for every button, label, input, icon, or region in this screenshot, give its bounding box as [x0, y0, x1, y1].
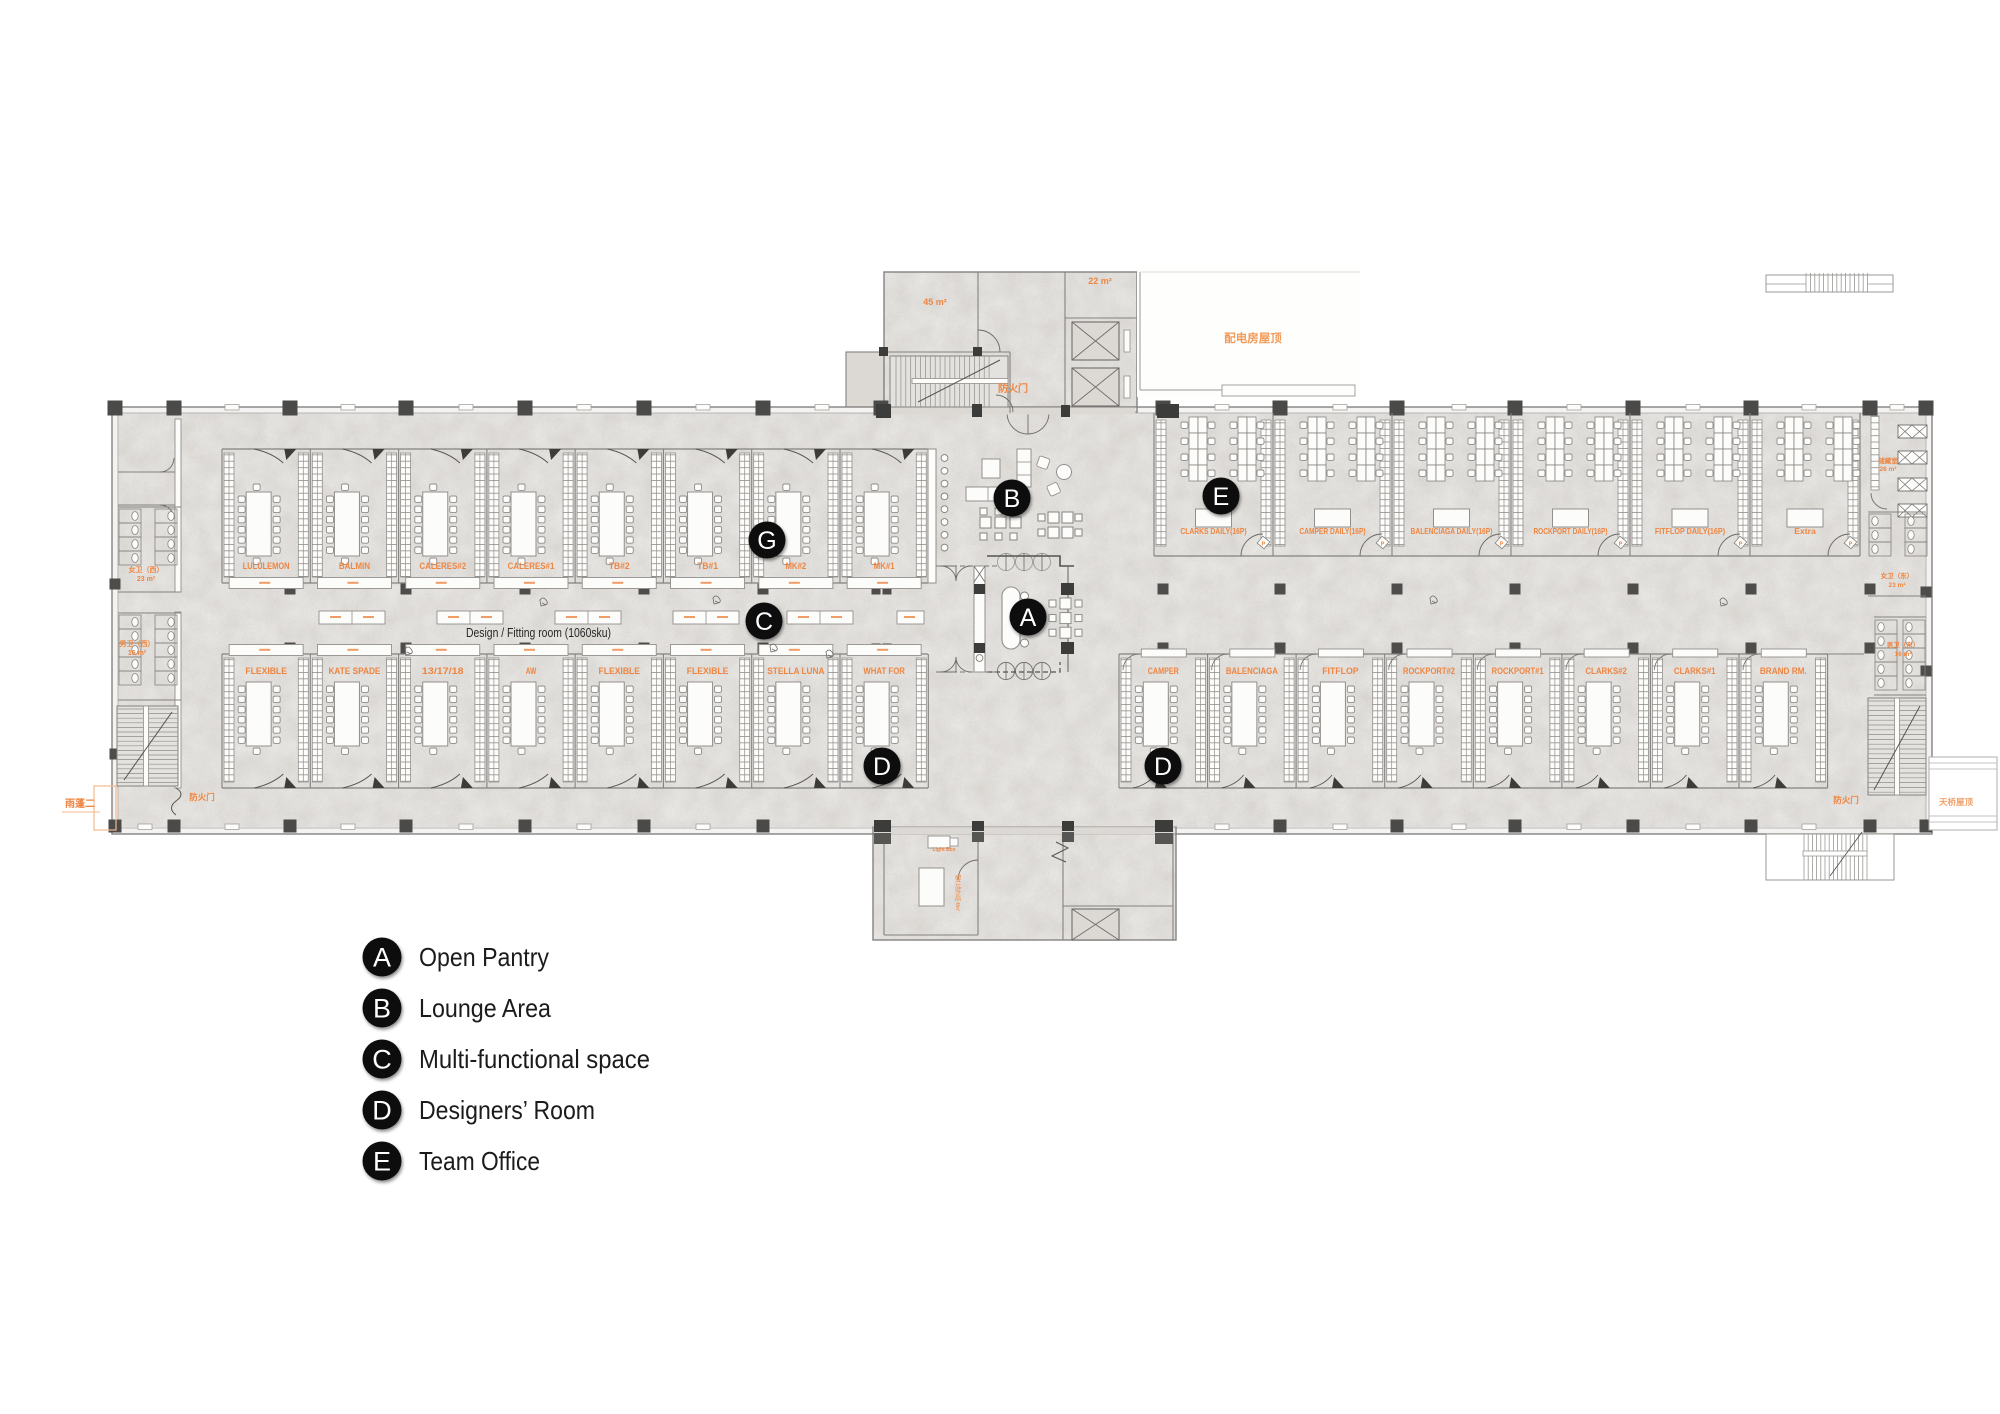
svg-text:G: G: [757, 527, 776, 555]
svg-text:储藏室: 储藏室: [1877, 456, 1898, 465]
svg-text:CLARKS DAILY(16P): CLARKS DAILY(16P): [1180, 526, 1246, 536]
svg-text:女卫（东）: 女卫（东）: [1881, 571, 1914, 580]
svg-text:KATE SPADE: KATE SPADE: [328, 666, 380, 676]
svg-text:MK#2: MK#2: [785, 561, 806, 571]
svg-text:TB#1: TB#1: [697, 561, 718, 571]
svg-text:P: P: [1849, 542, 1853, 548]
svg-text:C: C: [755, 608, 773, 636]
svg-text:Lounge Area: Lounge Area: [419, 993, 551, 1023]
svg-text:CALERES#1: CALERES#1: [508, 561, 555, 571]
svg-text:Open Pantry: Open Pantry: [419, 942, 549, 972]
svg-text:B: B: [1004, 485, 1021, 513]
svg-text:B: B: [373, 994, 391, 1024]
svg-text:Light Box: Light Box: [932, 847, 955, 853]
svg-text:P: P: [1381, 542, 1385, 548]
svg-text:22 m²: 22 m²: [1088, 276, 1112, 286]
svg-text:D: D: [1154, 753, 1172, 781]
svg-text:雨蓬二: 雨蓬二: [65, 797, 95, 810]
svg-text:E: E: [1213, 483, 1230, 511]
svg-text:CLARKS#2: CLARKS#2: [1585, 666, 1627, 676]
svg-text:Designers’ Room: Designers’ Room: [419, 1095, 595, 1125]
svg-text:FITFLOP: FITFLOP: [1322, 666, 1358, 676]
svg-text:TB#2: TB#2: [609, 561, 630, 571]
svg-text:BALENCIAGA DAILY(16P): BALENCIAGA DAILY(16P): [1411, 526, 1493, 536]
svg-text:防火门: 防火门: [189, 792, 215, 802]
svg-text:男卫（西）: 男卫（西）: [120, 640, 155, 648]
svg-text:防火门: 防火门: [1833, 795, 1859, 805]
svg-text:CALERES#2: CALERES#2: [419, 561, 466, 571]
svg-text:男卫（东）: 男卫（东）: [1886, 640, 1920, 649]
svg-text:STELLA LUNA: STELLA LUNA: [767, 666, 825, 676]
svg-text:E: E: [373, 1147, 391, 1177]
svg-text:ROCKPORT DAILY(16P): ROCKPORT DAILY(16P): [1533, 526, 1607, 536]
svg-text:D: D: [372, 1096, 392, 1126]
svg-text:CAMPER DAILY(16P): CAMPER DAILY(16P): [1299, 526, 1365, 536]
svg-text:FLEXIBLE: FLEXIBLE: [598, 666, 640, 676]
svg-text:Extra: Extra: [1794, 526, 1816, 536]
svg-text:A: A: [1020, 604, 1037, 632]
svg-text:MK#1: MK#1: [874, 561, 895, 571]
svg-text:23 m²: 23 m²: [1889, 582, 1907, 589]
svg-text:Design / Fitting room (1060sku: Design / Fitting room (1060sku): [466, 625, 611, 640]
svg-text:16 m²: 16 m²: [128, 650, 147, 657]
svg-text:Team Office: Team Office: [419, 1146, 540, 1176]
svg-text:BALMIN: BALMIN: [339, 561, 370, 571]
svg-text:配电房屋顶: 配电房屋顶: [1224, 331, 1282, 345]
svg-text:13/17/18: 13/17/18: [422, 666, 464, 676]
svg-text:P: P: [1262, 542, 1266, 548]
svg-text:23 m²: 23 m²: [137, 576, 156, 583]
svg-text:16 m²: 16 m²: [1895, 651, 1913, 658]
svg-text:天桥屋顶: 天桥屋顶: [1939, 797, 1974, 807]
svg-text:WHAT FOR: WHAT FOR: [863, 666, 905, 676]
svg-text:P: P: [1500, 542, 1504, 548]
svg-text:BALENCIAGA: BALENCIAGA: [1226, 666, 1278, 676]
svg-text:A: A: [373, 943, 391, 973]
svg-text:P: P: [1619, 542, 1623, 548]
svg-text:FLEXIBLE: FLEXIBLE: [245, 666, 287, 676]
svg-text:鞋材上色办公区 46m²: 鞋材上色办公区 46m²: [954, 875, 962, 911]
svg-text:防火门: 防火门: [998, 382, 1028, 395]
svg-text:BRAND RM.: BRAND RM.: [1760, 666, 1807, 676]
svg-text:CAMPER: CAMPER: [1148, 666, 1180, 676]
svg-text:C: C: [372, 1045, 392, 1075]
svg-text:26 m²: 26 m²: [1880, 466, 1898, 473]
svg-text:45 m²: 45 m²: [923, 297, 947, 307]
svg-text:P: P: [1739, 542, 1743, 548]
svg-text:ROCKPORT#1: ROCKPORT#1: [1492, 666, 1544, 676]
svg-text:D: D: [873, 753, 891, 781]
svg-text:ROCKPORT#2: ROCKPORT#2: [1403, 666, 1455, 676]
svg-text:AW: AW: [526, 666, 537, 676]
svg-text:LULULEMON: LULULEMON: [243, 561, 290, 571]
svg-text:FITFLOP DAILY(16P): FITFLOP DAILY(16P): [1655, 526, 1725, 536]
svg-text:CLARKS#1: CLARKS#1: [1674, 666, 1716, 676]
svg-text:女卫（西）: 女卫（西）: [129, 565, 164, 574]
svg-text:Multi-functional space: Multi-functional space: [419, 1044, 650, 1074]
svg-text:FLEXIBLE: FLEXIBLE: [687, 666, 729, 676]
